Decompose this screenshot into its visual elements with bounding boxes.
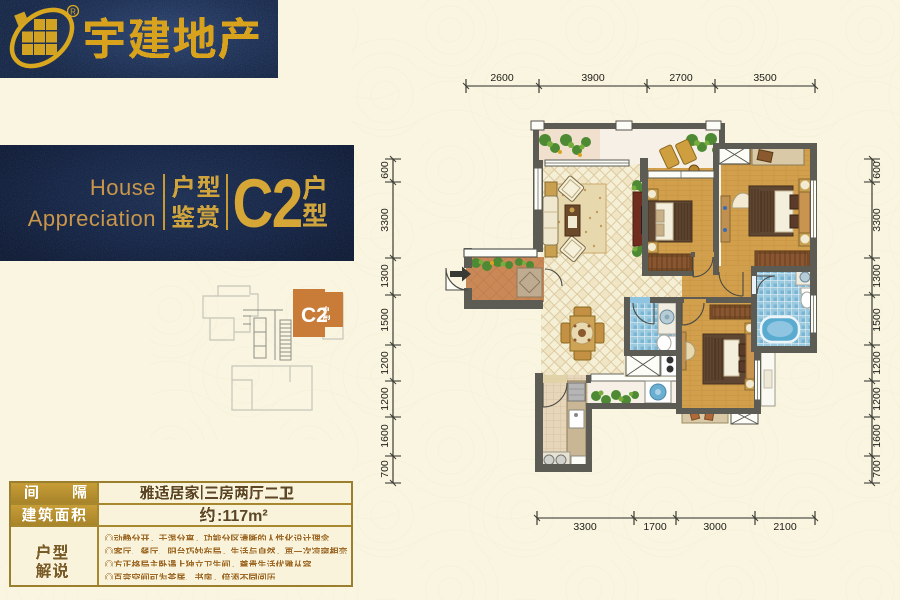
svg-text::117m²: :117m² — [217, 508, 268, 525]
